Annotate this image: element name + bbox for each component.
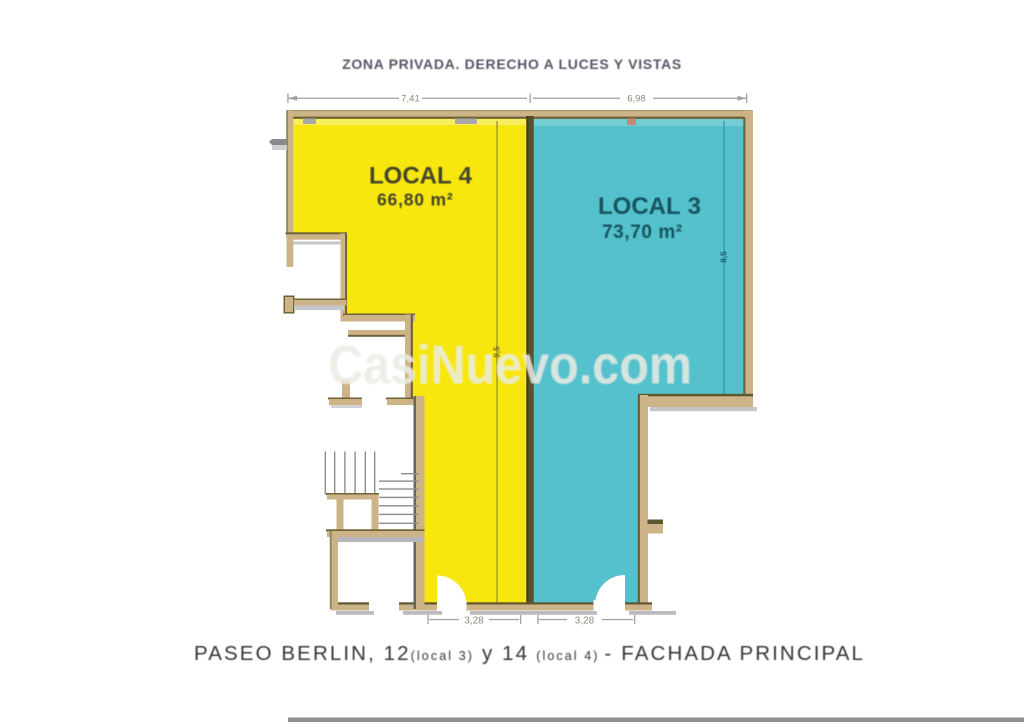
svg-text:66,80 m²: 66,80 m² — [377, 190, 453, 210]
svg-text:7,41: 7,41 — [401, 94, 420, 105]
svg-text:ZONA PRIVADA. DERECHO A LUCES: ZONA PRIVADA. DERECHO A LUCES Y VISTAS — [342, 56, 682, 72]
svg-text:6,98: 6,98 — [627, 94, 646, 105]
svg-text:3,28: 3,28 — [464, 616, 484, 627]
svg-text:8,5: 8,5 — [718, 251, 728, 263]
svg-text:73,70 m²: 73,70 m² — [602, 222, 683, 243]
svg-text:3,28: 3,28 — [575, 616, 595, 627]
svg-text:CasiNuevo.com: CasiNuevo.com — [328, 334, 692, 396]
